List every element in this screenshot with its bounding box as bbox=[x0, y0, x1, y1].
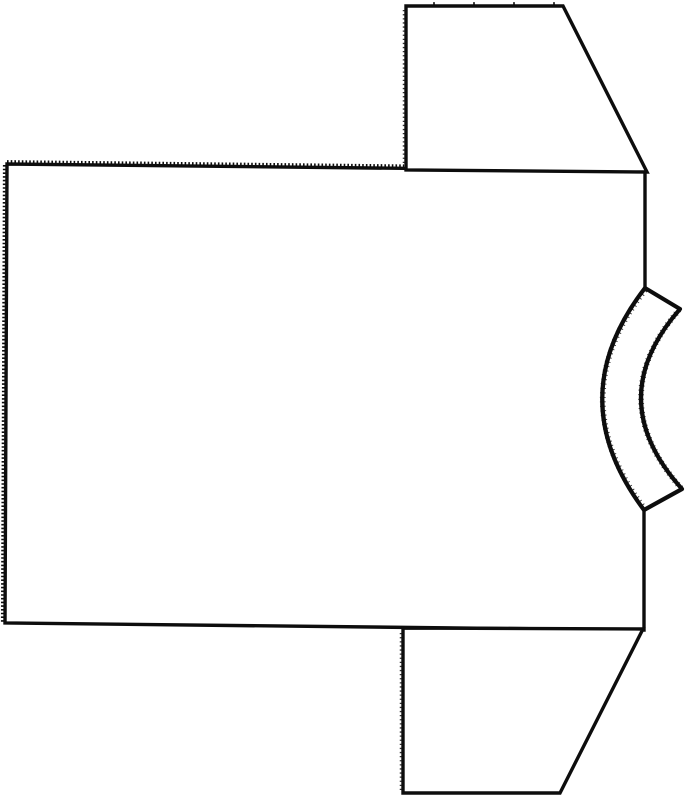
upper-sleeve bbox=[406, 6, 647, 172]
tshirt-line-drawing bbox=[0, 0, 687, 800]
lower-sleeve bbox=[403, 628, 643, 793]
tshirt-drawing-canvas bbox=[0, 0, 687, 800]
shirt-body-panel bbox=[5, 164, 645, 630]
